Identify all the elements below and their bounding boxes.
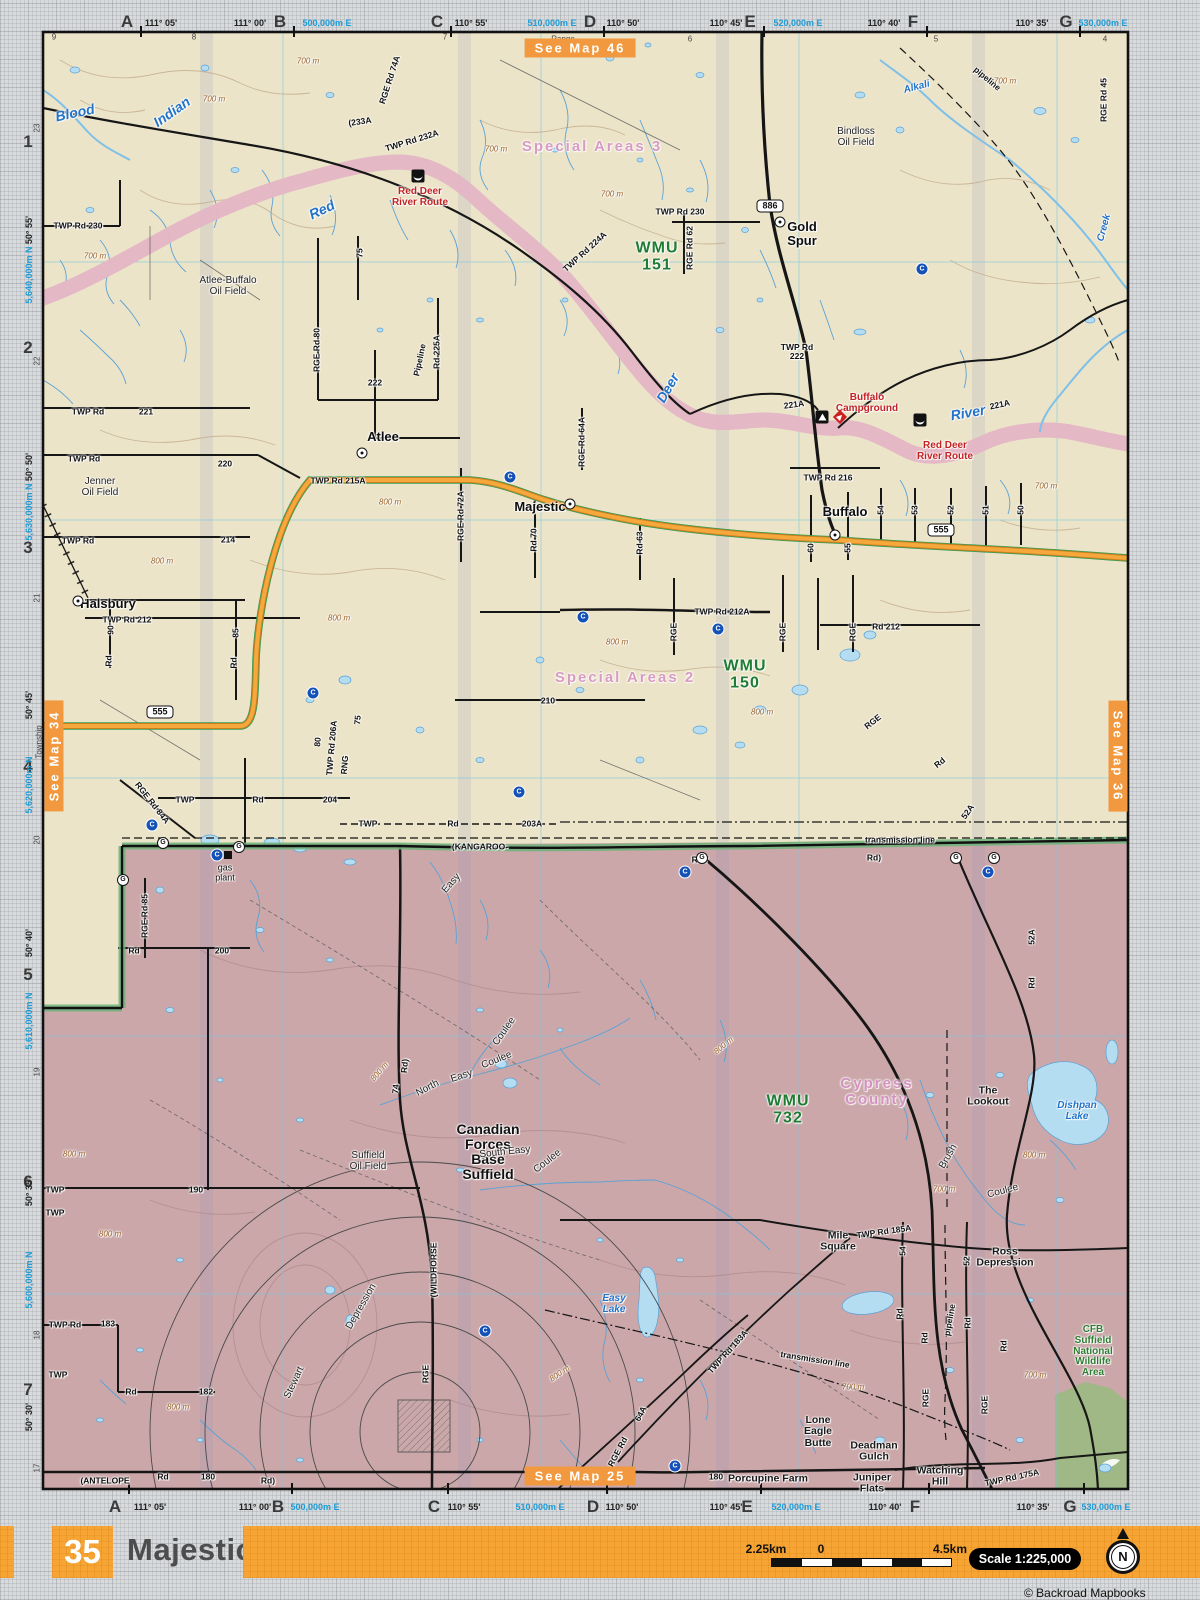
map-label-200: 200 xyxy=(215,946,229,955)
map-label-rd: Rd xyxy=(229,657,238,668)
map-label-pipeline: pipeline xyxy=(943,1303,958,1336)
grid-tick xyxy=(128,1483,130,1494)
edge-label-50-55: 50° 55' xyxy=(25,216,35,244)
edge-label-7: 7 xyxy=(443,34,447,43)
edge-label-f: F xyxy=(910,1498,920,1516)
edge-label-4: 4 xyxy=(1103,36,1107,45)
map-label-75: 75 xyxy=(355,248,364,257)
map-label-deer: Deer xyxy=(654,371,683,406)
footer-accent-strip xyxy=(0,1526,14,1578)
map-label-blood: Blood xyxy=(54,101,96,124)
edge-label-110-35: 110° 35' xyxy=(1017,1503,1050,1513)
edge-label-19: 19 xyxy=(34,1068,43,1077)
edge-label-5-610-000m-n: 5,610,000m N xyxy=(25,992,35,1049)
map-label-indian: Indian xyxy=(151,94,193,130)
grid-tick xyxy=(447,1483,449,1494)
poi-marker-icon: C xyxy=(712,623,725,636)
map-label-suffield-oil-field: Suffield Oil Field xyxy=(350,1151,387,1173)
map-label-221: 221 xyxy=(139,407,153,416)
town-marker-icon xyxy=(830,530,841,541)
map-label-800-m: 800 m xyxy=(99,1231,121,1240)
map-label-rd: Rd xyxy=(963,1317,972,1328)
map-label-easy-lake: Easy Lake xyxy=(602,1294,625,1316)
gate-icon: G xyxy=(117,874,129,886)
edge-label-4: 4 xyxy=(23,758,32,776)
poi-marker-icon: C xyxy=(211,849,224,862)
map-label-twp-rd-230: TWP Rd 230 xyxy=(656,207,705,216)
label-layer: 9A111° 05'8111° 00'B500,000m E7C110° 55'… xyxy=(0,0,1200,1600)
map-label-182: 182 xyxy=(199,1387,213,1396)
map-label-cypress-county: Cypress County xyxy=(840,1076,913,1108)
map-label-rd: Rd xyxy=(252,795,263,804)
edge-label-5: 5 xyxy=(23,966,32,984)
map-label-54: 54 xyxy=(876,505,885,514)
edge-label-110-50: 110° 50' xyxy=(606,1503,639,1513)
map-label-800-m: 800 m xyxy=(548,1364,571,1384)
edge-label-a: A xyxy=(121,13,133,31)
map-label-rge-rd-72a: RGE Rd 72A xyxy=(456,491,465,541)
edge-label-17: 17 xyxy=(34,1464,43,1473)
edge-label-110-55: 110° 55' xyxy=(448,1503,481,1513)
poi-marker-icon: C xyxy=(982,866,995,879)
edge-label-110-45: 110° 45' xyxy=(710,19,743,29)
see-map-46-link[interactable]: See Map 46 xyxy=(525,39,636,58)
map-label-twp-rd-224a: TWP Rd 224A xyxy=(561,230,608,274)
map-label-red: Red xyxy=(307,198,337,223)
map-label-deadman-gulch: Deadman Gulch xyxy=(850,1441,897,1464)
edge-label-110-45: 110° 45' xyxy=(710,1503,743,1513)
map-label-60: 60 xyxy=(806,543,815,552)
map-label-atlee: Atlee xyxy=(367,430,399,444)
edge-label-2: 2 xyxy=(23,339,32,357)
town-marker-icon xyxy=(775,217,786,228)
map-label-52a: 52A xyxy=(1027,929,1036,945)
map-label-203a: 203A xyxy=(522,819,542,828)
map-label-700-m: 700 m xyxy=(994,78,1016,87)
see-map-34-link[interactable]: See Map 34 xyxy=(45,701,64,812)
edge-label-22: 22 xyxy=(34,357,43,366)
map-label-coulee: Coulee xyxy=(986,1183,1019,1202)
map-label-rge-rd-74a: RGE Rd 74A xyxy=(378,55,402,105)
map-label-rd: Rd xyxy=(104,655,113,666)
edge-label-21: 21 xyxy=(34,594,43,603)
map-label-special-areas-2: Special Areas 2 xyxy=(555,670,695,686)
highway-shield-555: 555 xyxy=(927,524,954,537)
edge-label-530-000m-e: 530,000m E xyxy=(1081,1503,1130,1513)
map-label-gold-spur: Gold Spur xyxy=(787,220,817,248)
edge-label-5: 5 xyxy=(934,36,938,45)
map-number-badge: 35 xyxy=(52,1526,113,1578)
map-label-buffalo-campground: Buffalo Campground xyxy=(836,393,898,415)
map-label-90: 90 xyxy=(106,625,115,634)
map-label-twp-rd-212: TWP Rd 212 xyxy=(103,615,152,624)
grid-tick xyxy=(450,26,452,37)
edge-label-e: E xyxy=(741,1498,752,1516)
map-label-wmu-732: WMU 732 xyxy=(767,1093,810,1128)
map-label-alkali: Alkali xyxy=(903,79,932,96)
map-label-coulee: Coulee xyxy=(491,1016,518,1048)
map-label-gas-plant: gas plant xyxy=(215,863,235,882)
map-label-800-m: 800 m xyxy=(328,615,350,624)
see-map-36-link[interactable]: See Map 36 xyxy=(1109,701,1128,812)
map-label-transmission-line: transmission line xyxy=(780,1350,850,1370)
map-label-183: 183 xyxy=(101,1319,115,1328)
map-label-204: 204 xyxy=(323,795,337,804)
grid-tick xyxy=(291,1483,293,1494)
edge-label-9: 9 xyxy=(52,34,56,43)
scale-label-right: 4.5km xyxy=(933,1542,967,1556)
map-label-easy: Easy xyxy=(441,872,464,896)
poi-marker-icon: C xyxy=(577,611,590,624)
town-marker-icon xyxy=(73,596,84,607)
map-label-watching-hill: Watching Hill xyxy=(917,1466,964,1489)
map-label-lone-eagle-butte: Lone Eagle Butte xyxy=(804,1415,832,1449)
map-label-twp: TWP xyxy=(46,1185,65,1194)
map-label-rd-63: Rd 63 xyxy=(635,531,644,554)
map-label-twp-rd-175a: TWP Rd 175A xyxy=(984,1468,1040,1488)
map-label-190: 190 xyxy=(189,1185,203,1194)
map-label-800-m: 800 m xyxy=(713,1036,736,1057)
map-label-64a: 64A xyxy=(633,1405,648,1423)
grid-tick xyxy=(763,26,765,37)
map-label-special-areas-3: Special Areas 3 xyxy=(522,139,662,155)
map-label-twp: TWP xyxy=(176,795,195,804)
map-label-75: 75 xyxy=(353,715,363,725)
edge-label-520-000m-e: 520,000m E xyxy=(771,1503,820,1513)
map-label-800-m: 800 m xyxy=(63,1151,85,1160)
edge-label-c: C xyxy=(431,13,443,31)
map-label-rge: RGE xyxy=(921,1389,930,1407)
edge-label-5-640-000m-n: 5,640,000m N xyxy=(25,246,35,303)
map-label-74: 74 xyxy=(391,1084,401,1094)
edge-label-e: E xyxy=(744,13,755,31)
scale-bar xyxy=(771,1558,952,1567)
map-label-800-m: 800 m xyxy=(606,639,628,648)
edge-label-1: 1 xyxy=(23,133,32,151)
edge-label-510-000m-e: 510,000m E xyxy=(527,19,576,29)
map-label-rge-rd-80: RGE Rd 80 xyxy=(312,328,321,372)
grid-tick xyxy=(1079,26,1081,37)
edge-label-50-40: 50° 40' xyxy=(25,929,35,957)
grid-tick xyxy=(760,1483,762,1494)
edge-label-5-600-000m-n: 5,600,000m N xyxy=(25,1251,35,1308)
compass-north-icon: N xyxy=(1106,1528,1140,1576)
map-label-222: 222 xyxy=(368,378,382,387)
map-label-233a: (233A xyxy=(348,116,372,128)
map-label-brush: Brush xyxy=(938,1143,960,1171)
gate-icon: G xyxy=(950,852,962,864)
map-label-52: 52 xyxy=(946,505,955,514)
edge-label-b: B xyxy=(272,1498,284,1516)
scale-label-left: 2.25km xyxy=(746,1542,787,1556)
grid-tick xyxy=(603,26,605,37)
map-label-twp-rd: TWP Rd xyxy=(62,536,94,545)
map-label-rge-rd-45: RGE Rd 45 xyxy=(1099,78,1108,122)
town-marker-icon xyxy=(565,499,576,510)
map-label-53: 53 xyxy=(910,505,919,514)
edge-label-500-000m-e: 500,000m E xyxy=(290,1503,339,1513)
edge-label-111-00: 111° 00' xyxy=(239,1503,271,1513)
map-label-rge-rd-85: RGE Rd 85 xyxy=(140,894,149,938)
gas-plant-icon xyxy=(224,851,232,859)
copyright: © Backroad Mapbooks xyxy=(1024,1586,1146,1600)
map-label-jenner-oil-field: Jenner Oil Field xyxy=(82,477,119,499)
map-label-south-easy: South Easy xyxy=(479,1145,531,1161)
map-label-52a: 52A xyxy=(960,803,976,821)
map-label-twp-rd-232a: TWP Rd 232A xyxy=(384,129,439,154)
map-label-54: 54 xyxy=(898,1246,907,1255)
edge-label-6: 6 xyxy=(23,1173,32,1191)
edge-label-c: C xyxy=(428,1498,440,1516)
map-title: Majestic xyxy=(127,1532,253,1568)
map-label-twp-rd-206a: TWP Rd 206A xyxy=(325,720,339,776)
map-label-rd: Rd xyxy=(933,756,948,770)
map-label-220: 220 xyxy=(218,459,232,468)
map-label-stewart: Stewart xyxy=(283,1365,307,1400)
map-label-juniper-flats: Juniper Flats xyxy=(853,1473,891,1496)
compass-n: N xyxy=(1118,1549,1127,1564)
canoe-route-icon xyxy=(412,170,425,183)
map-label-51: 51 xyxy=(981,505,990,514)
map-label-twp-rd-183a: TWP Rd 183A xyxy=(706,1328,750,1375)
map-label-twp-rd: TWP Rd xyxy=(72,407,104,416)
map-label-55: 55 xyxy=(843,543,852,552)
map-label-800-m: 800 m xyxy=(370,1061,391,1084)
map-label-rd: Rd xyxy=(920,1332,929,1343)
map-label-rge: RGE xyxy=(848,623,857,641)
map-label-rng: RNG xyxy=(340,755,351,775)
map-label-800-m: 800 m xyxy=(151,558,173,567)
map-label-700-m: 700 m xyxy=(842,1384,864,1393)
map-label-canadian-forces-base-suffiel: Canadian Forces Base Suffield xyxy=(456,1122,519,1182)
map-label-180: 180 xyxy=(709,1472,723,1481)
map-label-pipeline: Pipeline xyxy=(412,343,428,377)
grid-tick xyxy=(928,1483,930,1494)
map-label-atlee-buffalo-oil-field: Atlee-Buffalo Oil Field xyxy=(199,276,256,298)
edge-label-50-35: 50° 35' xyxy=(25,1178,35,1206)
poi-marker-icon: C xyxy=(307,687,320,700)
map-label-depression: Depression xyxy=(345,1282,380,1331)
poi-marker-icon: C xyxy=(479,1325,492,1338)
map-label-800-m: 800 m xyxy=(751,709,773,718)
scale-ratio-badge: Scale 1:225,000 xyxy=(969,1548,1081,1570)
edge-label-5-630-000m-n: 5,630,000m N xyxy=(25,483,35,540)
map-label-700-m: 700 m xyxy=(601,191,623,200)
map-label-rd: Rd) xyxy=(261,1476,275,1485)
edge-label-110-35: 110° 35' xyxy=(1016,19,1049,29)
map-label-800-m: 800 m xyxy=(167,1404,189,1413)
map-label-pipeline: pipeline xyxy=(972,65,1003,93)
edge-label-110-40: 110° 40' xyxy=(869,1503,902,1513)
map-label-180: 180 xyxy=(201,1472,215,1481)
edge-label-5-620-000m-n: 5,620,000m N xyxy=(25,756,35,813)
edge-label-6: 6 xyxy=(688,36,692,45)
map-label-rd: Rd xyxy=(447,819,458,828)
map-label-buffalo: Buffalo xyxy=(823,505,868,519)
map-label-twp-rd-216: TWP Rd 216 xyxy=(804,473,853,482)
map-label-700-m: 700 m xyxy=(485,146,507,155)
map-label-twp-rd: TWP Rd xyxy=(49,1320,81,1329)
poi-marker-icon: C xyxy=(513,786,526,799)
map-label-twp: TWP xyxy=(359,819,378,828)
grid-tick xyxy=(140,26,142,37)
map-label-rge: RGE xyxy=(980,1396,989,1414)
map-label-red-deer-river-route: Red Deer River Route xyxy=(392,187,448,209)
edge-label-111-05: 111° 05' xyxy=(145,19,177,29)
edge-label-50-50: 50° 50' xyxy=(25,453,35,481)
map-label-221a: 221A xyxy=(783,399,804,411)
map-label-rge: RGE xyxy=(778,623,787,641)
poi-marker-icon: C xyxy=(146,819,159,832)
edge-label-500-000m-e: 500,000m E xyxy=(302,19,351,29)
gate-icon: G xyxy=(157,837,169,849)
map-label-rd-212: Rd 212 xyxy=(872,622,900,631)
map-label-700-m: 700 m xyxy=(297,58,319,67)
edge-label-111-00: 111° 00' xyxy=(234,19,266,29)
edge-label-510-000m-e: 510,000m E xyxy=(515,1503,564,1513)
poi-marker-icon: C xyxy=(504,471,517,484)
edge-label-20: 20 xyxy=(34,836,43,845)
map-label-twp-rd-212a: TWP Rd 212A xyxy=(694,607,749,616)
grid-tick xyxy=(1083,1483,1085,1494)
edge-label-520-000m-e: 520,000m E xyxy=(773,19,822,29)
edge-label-township: Township xyxy=(36,725,45,758)
edge-label-f: F xyxy=(908,13,918,31)
map-label-coulee: Coulee xyxy=(532,1148,564,1176)
poi-marker-icon: C xyxy=(916,263,929,276)
map-label-twp-rd-185a: TWP Rd 185A xyxy=(856,1224,912,1241)
map-label-twp-rd-215a: TWP Rd 215A xyxy=(310,476,365,485)
canoe-route-icon xyxy=(914,414,927,427)
gate-icon: G xyxy=(233,841,245,853)
map-label-porcupine-farm: Porcupine Farm xyxy=(728,1473,808,1484)
map-label-twp-rd: TWP Rd xyxy=(68,454,100,463)
map-label-ross-depression: Ross Depression xyxy=(976,1247,1033,1270)
edge-label-50-30: 50° 30' xyxy=(25,1403,35,1431)
grid-tick xyxy=(926,26,928,37)
edge-label-530-000m-e: 530,000m E xyxy=(1078,19,1127,29)
map-label-transmission-line: transmission line xyxy=(865,835,935,844)
edge-label-18: 18 xyxy=(34,1331,43,1340)
map-label-80: 80 xyxy=(313,737,323,747)
map-label-85: 85 xyxy=(231,628,240,637)
campsite-icon xyxy=(833,410,847,424)
edge-label-d: D xyxy=(584,13,596,31)
edge-label-23: 23 xyxy=(34,124,43,133)
map-label-cfb-suffield-national-wildli: CFB Suffield National Wildlife Area xyxy=(1073,1325,1112,1379)
map-label-antelope: (ANTELOPE xyxy=(80,1476,129,1485)
map-label-rge-rd-62: RGE Rd 62 xyxy=(685,226,694,270)
map-label-twp: TWP xyxy=(49,1370,68,1379)
edge-label-b: B xyxy=(274,13,286,31)
edge-label-110-50: 110° 50' xyxy=(607,19,640,29)
edge-label-3: 3 xyxy=(23,539,32,557)
compass-arrow xyxy=(1117,1528,1129,1539)
map-label-800-m: 800 m xyxy=(1023,1152,1045,1161)
edge-label-8: 8 xyxy=(192,34,196,43)
edge-label-d: D xyxy=(587,1498,599,1516)
highway-shield-886: 886 xyxy=(756,200,783,213)
map-label-rge: RGE xyxy=(421,1365,430,1383)
map-label-red-deer-river-route: Red Deer River Route xyxy=(917,441,973,463)
map-label-rd: Rd xyxy=(157,1472,168,1481)
map-label-easy: Easy xyxy=(450,1068,474,1085)
map-label-dishpan-lake: Dishpan Lake xyxy=(1057,1101,1096,1123)
map-label-52: 52 xyxy=(962,1256,971,1265)
map-label-kangaroo: (KANGAROO- xyxy=(452,842,508,851)
poi-marker-icon: C xyxy=(669,1460,682,1473)
map-label-halsbury: Halsbury xyxy=(80,597,136,611)
gate-icon: G xyxy=(988,852,1000,864)
map-label-214: 214 xyxy=(221,535,235,544)
map-label-rge-rd-64a: RGE Rd 64A xyxy=(577,417,586,467)
grid-tick xyxy=(293,26,295,37)
map-label-twp-rd-222: TWP Rd 222 xyxy=(781,343,813,361)
map-label-rd-70: Rd 70 xyxy=(529,528,538,551)
map-label-mile-square: Mile Square xyxy=(820,1231,856,1254)
edge-label-110-55: 110° 55' xyxy=(455,19,488,29)
map-label-twp-rd-230: TWP Rd 230 xyxy=(54,221,103,230)
map-label-creek: Creek xyxy=(1096,213,1114,243)
map-label-the-lookout: The Lookout xyxy=(967,1086,1008,1109)
map-label-700-m: 700 m xyxy=(203,96,225,105)
map-label-800-m: 800 m xyxy=(379,499,401,508)
town-marker-icon xyxy=(357,448,368,459)
edge-label-111-05: 111° 05' xyxy=(134,1503,166,1513)
map-label-rd: Rd) xyxy=(867,853,881,862)
edge-label-g: G xyxy=(1063,1498,1076,1516)
map-label-coulee: Coulee xyxy=(480,1050,513,1072)
map-label-rd-225a: Rd 225A xyxy=(432,335,441,369)
poi-marker-icon: C xyxy=(679,866,692,879)
map-label-rge: RGE xyxy=(669,623,678,641)
map-label-700-m: 700 m xyxy=(1035,483,1057,492)
map-label-221a: 221A xyxy=(989,398,1011,411)
edge-label-g: G xyxy=(1059,13,1072,31)
map-label-rge: RGE xyxy=(863,713,883,732)
map-label-rd: Rd xyxy=(999,1340,1008,1351)
map-label-wmu-151: WMU 151 xyxy=(636,240,679,275)
map-label-river: River xyxy=(949,403,986,424)
highway-shield-555: 555 xyxy=(146,706,173,719)
map-label-700-m: 700 m xyxy=(933,1186,955,1195)
map-label-rd: Rd xyxy=(128,946,139,955)
map-label-rd: Rd xyxy=(895,1308,904,1319)
map-label-wildhorse: (WILDHORSE xyxy=(429,1243,438,1298)
edge-label-7: 7 xyxy=(23,1381,32,1399)
gate-icon: G xyxy=(696,852,708,864)
campground-icon xyxy=(816,411,829,424)
edge-label-110-40: 110° 40' xyxy=(868,19,901,29)
map-label-rd: Rd xyxy=(1027,977,1036,988)
map-label-bindloss-oil-field: Bindloss Oil Field xyxy=(837,127,875,149)
edge-label-50-45: 50° 45' xyxy=(25,691,35,719)
scale-label-zero: 0 xyxy=(818,1542,825,1556)
map-label-majestic: Majestic xyxy=(514,500,565,514)
edge-label-a: A xyxy=(109,1498,121,1516)
map-label-210: 210 xyxy=(541,696,555,705)
map-label-north: North xyxy=(415,1078,442,1099)
map-label-700-m: 700 m xyxy=(1024,1372,1046,1381)
map-label-rd: Rd) xyxy=(400,1059,410,1074)
map-label-twp: TWP xyxy=(46,1208,65,1217)
map-label-700-m: 700 m xyxy=(84,253,106,262)
map-label-rge-rd: RGE Rd xyxy=(606,1436,629,1469)
map-label-rd: Rd xyxy=(125,1387,136,1396)
map-label-wmu-150: WMU 150 xyxy=(724,658,767,693)
map-label-50: 50 xyxy=(1016,505,1025,514)
see-map-25-link[interactable]: See Map 25 xyxy=(525,1467,636,1486)
